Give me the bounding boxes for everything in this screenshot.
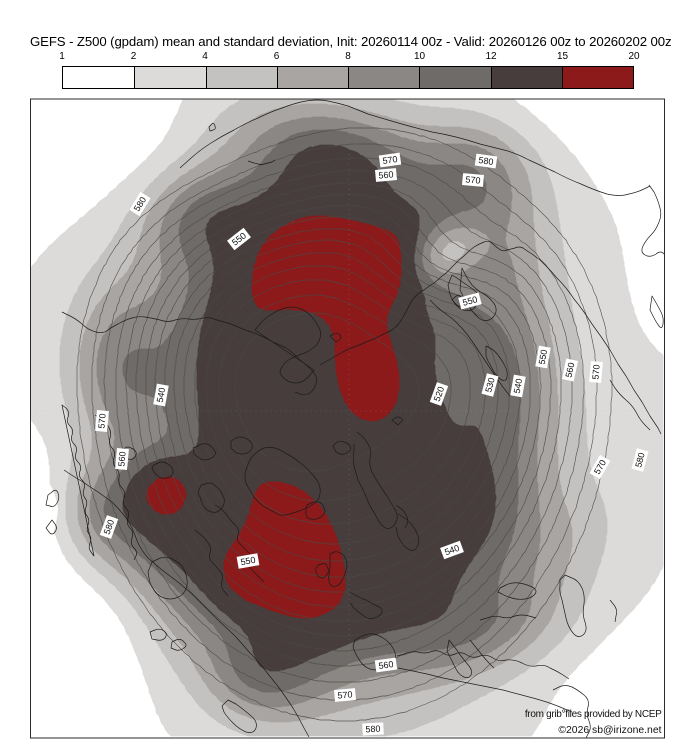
svg-text:570: 570 [382, 154, 398, 166]
svg-text:560: 560 [116, 451, 127, 467]
svg-text:©2026 sb@irizone.net: ©2026 sb@irizone.net [558, 725, 661, 736]
svg-text:570: 570 [337, 689, 353, 700]
svg-text:570: 570 [590, 364, 601, 380]
svg-text:570: 570 [96, 413, 107, 429]
svg-text:from grib°files provided by NC: from grib°files provided by NCEP [525, 709, 662, 720]
svg-text:560: 560 [378, 169, 394, 180]
svg-text:580: 580 [478, 155, 494, 167]
svg-text:580: 580 [365, 724, 381, 735]
svg-text:560: 560 [378, 659, 394, 671]
svg-text:570: 570 [465, 174, 481, 185]
